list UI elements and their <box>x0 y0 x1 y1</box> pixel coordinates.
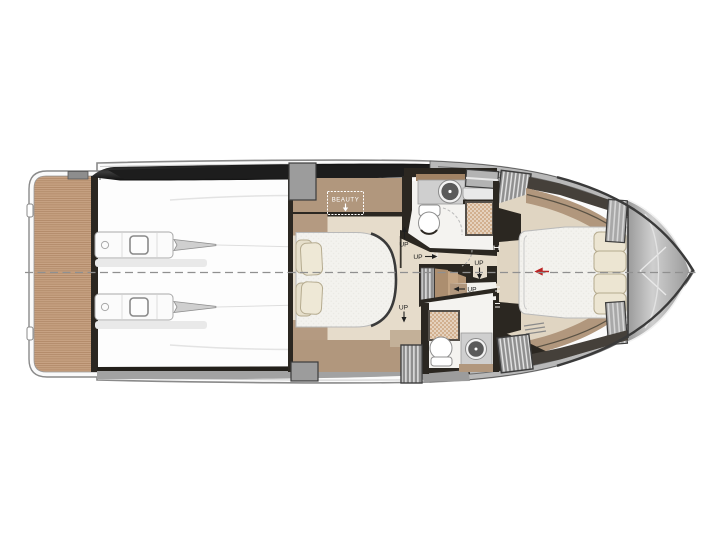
svg-text:UP: UP <box>467 287 477 294</box>
svg-text:UP: UP <box>399 242 409 249</box>
svg-text:UP: UP <box>413 254 423 261</box>
svg-text:UP: UP <box>474 260 484 267</box>
svg-text:UP: UP <box>399 305 409 312</box>
svg-text:BEAUTY: BEAUTY <box>332 198 360 204</box>
